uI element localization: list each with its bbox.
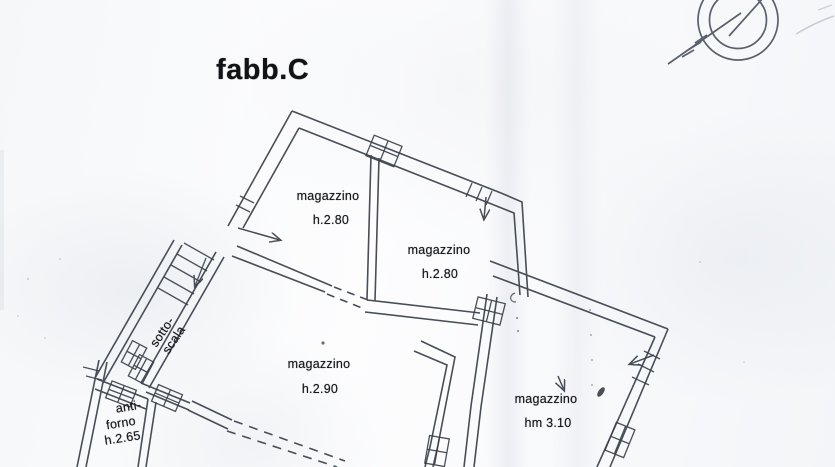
room-label-magazzino-top-right: magazzino <box>394 243 484 257</box>
room-height-right: hm 3.10 <box>503 416 593 430</box>
junction-box <box>473 297 505 325</box>
room-label-magazzino-right: magazzino <box>501 392 591 406</box>
room-height-top-right: h.2.80 <box>395 267 485 281</box>
room-height-center: h.2.90 <box>275 382 365 396</box>
north-compass-icon <box>668 0 778 64</box>
scan-artifacts <box>0 5 834 398</box>
junction-box <box>605 422 635 457</box>
building-walls <box>77 111 668 467</box>
door-arrow-room-d <box>630 355 654 364</box>
small-mark-arrow <box>558 376 564 390</box>
room-label-magazzino-center: magazzino <box>274 357 364 371</box>
room-height-top-left: h.2.80 <box>286 213 376 227</box>
floor-plan-drawing <box>0 0 835 467</box>
door-arrow-room-b <box>484 197 486 219</box>
room-label-magazzino-top-left: magazzino <box>283 189 373 203</box>
scanned-floor-plan-page: fabb.C magazzino h.2.80 magazzino h.2.80… <box>0 0 835 467</box>
door-arrow-room-a <box>238 228 280 240</box>
plan-title: fabb.C <box>216 54 309 87</box>
